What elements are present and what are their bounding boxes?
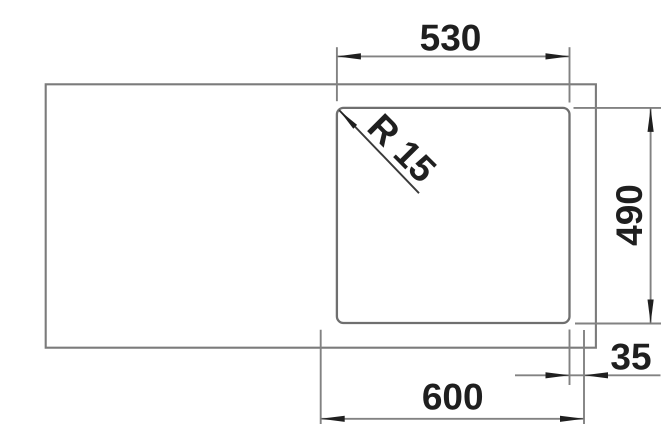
svg-text:490: 490 (609, 184, 650, 246)
svg-text:35: 35 (610, 337, 651, 378)
svg-text:530: 530 (420, 18, 482, 59)
svg-text:600: 600 (422, 377, 484, 418)
